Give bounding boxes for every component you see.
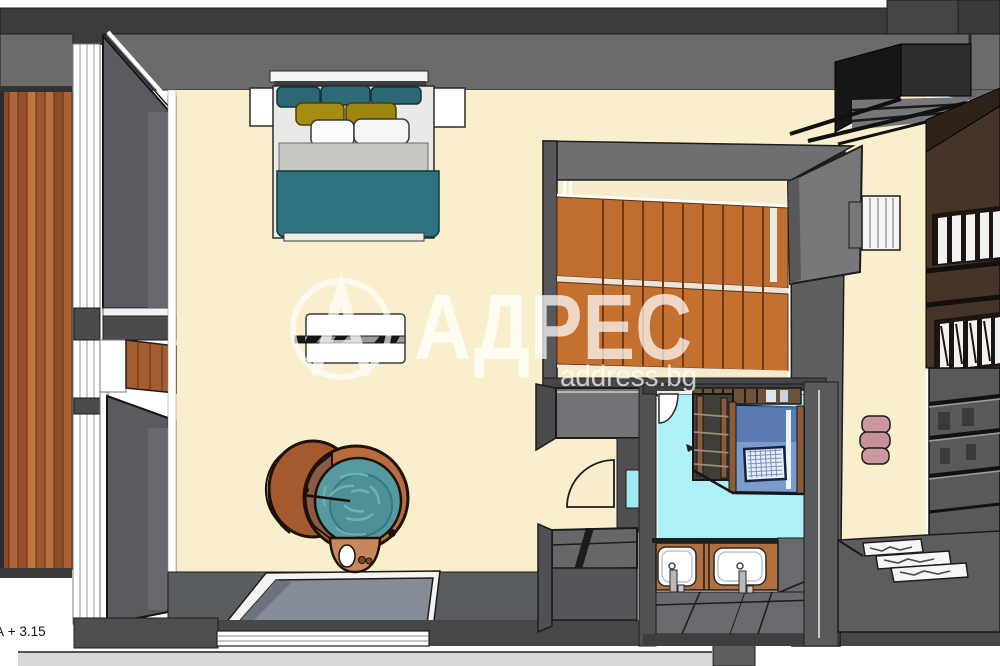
svg-text:А + 3.15: А + 3.15 [0,624,46,639]
svg-text:address.bg: address.bg [560,360,697,393]
